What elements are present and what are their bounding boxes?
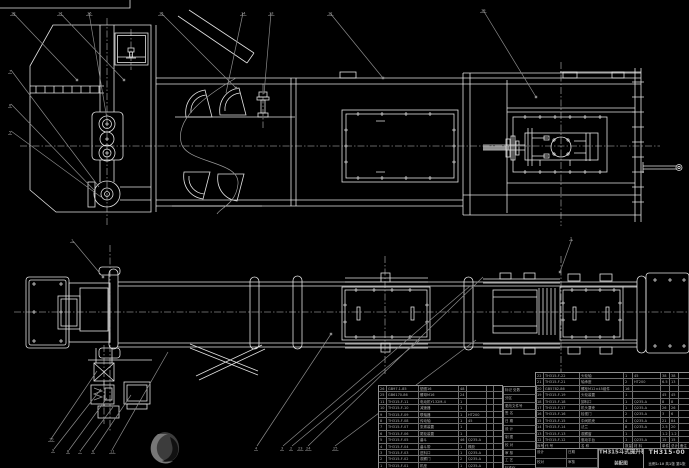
- item-balloon: 19: [480, 5, 493, 13]
- bom-cell-qty: 1: [459, 463, 467, 468]
- item-balloon: 6: [8, 100, 16, 108]
- revision-row: 制 图: [504, 434, 536, 442]
- top-view-elevation: [0, 0, 682, 222]
- item-balloon: 3: [280, 443, 288, 451]
- item-balloon-number: 6: [8, 104, 12, 108]
- item-balloon: 6: [91, 446, 99, 454]
- item-balloon-number: 7: [8, 70, 12, 74]
- signature-cell: 日期: [567, 449, 598, 459]
- item-balloon: 17: [57, 8, 70, 16]
- revision-row: 标记 处数: [504, 387, 536, 395]
- item-balloon-number: 8: [66, 450, 70, 454]
- item-balloon-number: 10: [48, 438, 54, 442]
- item-balloon: 5: [8, 127, 16, 135]
- revision-row: 审 核: [504, 450, 536, 458]
- item-balloon-number: 5: [8, 131, 12, 135]
- item-balloon: 13: [268, 8, 281, 16]
- item-balloon: 16: [86, 8, 99, 16]
- revision-row: 日 期: [504, 418, 536, 426]
- drawing-title-cell: TH315斗式提升机 装配图: [599, 449, 644, 468]
- drawing-subtitle: 装配图: [599, 461, 643, 466]
- item-balloon: 8: [66, 446, 74, 454]
- signature-cell: 设计: [536, 449, 567, 459]
- item-balloon: 24: [305, 443, 318, 451]
- item-balloon-number: 19: [480, 9, 486, 13]
- cad-drawing-canvas: 18171615141312197651210987611432232425 2…: [0, 0, 689, 468]
- bom-row: 1 TH315-F-01 机座 1 Q235-A: [379, 463, 502, 468]
- item-balloon: 4: [254, 443, 262, 451]
- revision-row: 设 计: [504, 426, 536, 434]
- drawing-title: TH315斗式提升机: [599, 449, 643, 455]
- leader-lines: [11, 10, 572, 450]
- revision-row: 签 名: [504, 410, 536, 418]
- bom-table-right: 22 TH315-F-22 头轮轴 1 45 38 38 21 TH315-F-…: [535, 372, 689, 451]
- item-balloon-number: 1: [70, 239, 74, 243]
- item-balloon-number: 12: [327, 12, 333, 16]
- item-balloon-number: 9: [51, 449, 55, 453]
- item-balloon-number: 6: [91, 450, 95, 454]
- centerlines: [14, 18, 688, 432]
- item-balloon: 7: [8, 66, 16, 74]
- revision-row: 更改文件号: [504, 403, 536, 411]
- item-balloon: 12: [327, 8, 340, 16]
- title-block: 设计日期校对审核 TH315斗式提升机 装配图 TH315-00 比例1:10 …: [535, 448, 689, 468]
- revision-block: 标记 处数分区更改文件号签 名日 期设 计制 图校 对审 核工 艺标准化批 准: [503, 386, 537, 468]
- item-balloon-number: 24: [305, 447, 311, 451]
- item-balloon-number: 2: [289, 447, 293, 451]
- item-balloon-number: 2: [569, 237, 573, 241]
- revision-row: 校 对: [504, 442, 536, 450]
- item-balloon: 10: [48, 434, 61, 442]
- bom-cell-item-no: 1: [379, 463, 387, 468]
- item-balloon: 9: [51, 445, 59, 453]
- item-balloon-number: 11: [109, 450, 115, 454]
- item-balloon-number: 23: [297, 447, 303, 451]
- bom-cell-material: Q235-A: [467, 463, 487, 468]
- drawing-info-row: 比例1:10 共1张 第1张: [644, 462, 689, 466]
- revision-row: 工 艺: [504, 457, 536, 465]
- item-balloon-number: 3: [280, 447, 284, 451]
- item-balloon-number: 7: [78, 450, 82, 454]
- item-balloon-number: 15: [158, 12, 164, 16]
- bom-cell-unit-weight: [487, 463, 494, 468]
- item-balloon: 1: [70, 235, 78, 243]
- item-balloon: 7: [78, 446, 86, 454]
- item-balloon: 18: [10, 8, 23, 16]
- item-balloon-number: 18: [10, 12, 16, 16]
- signature-area: 设计日期校对审核: [536, 449, 599, 468]
- bom-cell-total-weight: [494, 463, 502, 468]
- watermark-stamp-icon: [150, 429, 183, 465]
- item-balloon: 25: [332, 443, 345, 451]
- item-balloon-number: 13: [268, 12, 274, 16]
- bom-cell-name: 机座: [419, 463, 459, 468]
- item-balloon: 14: [240, 8, 253, 16]
- item-balloon: 11: [109, 446, 122, 454]
- drawing-number: TH315-00: [644, 449, 689, 456]
- item-balloon-number: 14: [240, 12, 246, 16]
- drawing-number-cell: TH315-00 比例1:10 共1张 第1张: [644, 449, 689, 468]
- item-balloon-number: 16: [86, 12, 92, 16]
- item-balloon-number: 4: [254, 447, 258, 451]
- item-balloon-number: 17: [57, 12, 63, 16]
- item-balloon-number: 25: [332, 447, 338, 451]
- bom-cell-code: TH315-F-01: [387, 463, 419, 468]
- bom-table-left: 26 GB97.1-85 垫圈16 48 25 GB6170-86 螺母M16 …: [378, 385, 503, 468]
- item-balloon: 15: [158, 8, 171, 16]
- item-balloon: 2: [569, 233, 577, 241]
- revision-row: 分区: [504, 395, 536, 403]
- signature-cell: 校对: [536, 459, 567, 468]
- signature-cell: 审核: [567, 459, 598, 468]
